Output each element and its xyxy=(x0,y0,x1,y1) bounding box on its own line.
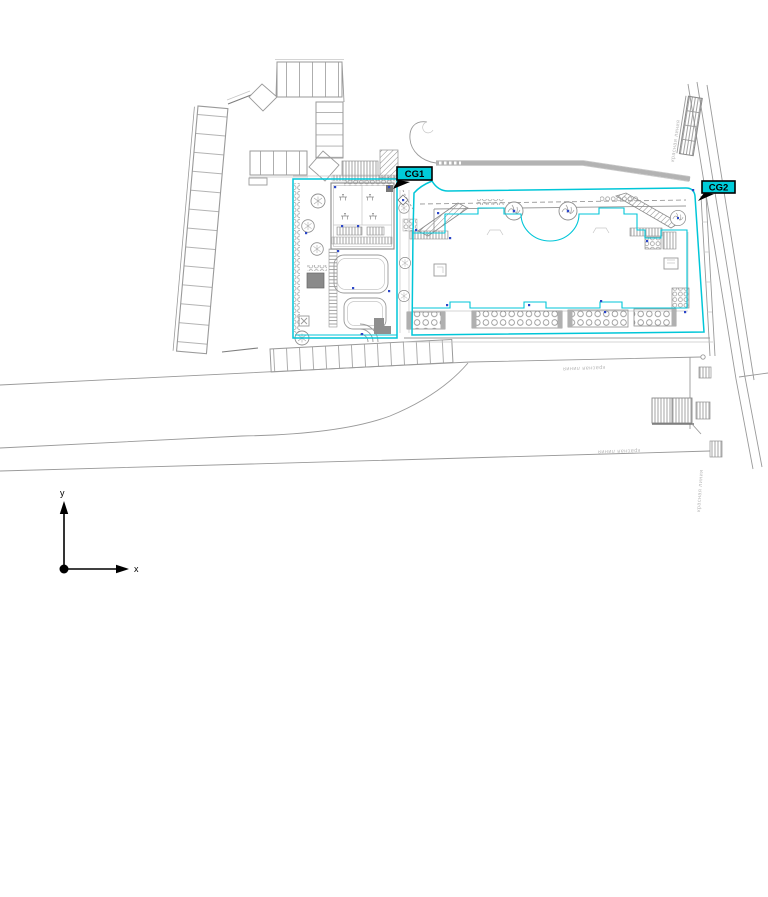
red-line-label-northeast: красная линия xyxy=(670,119,682,162)
red-line-label-mid: красная линия xyxy=(563,364,606,371)
parking-row-inner xyxy=(250,151,307,175)
stair-landing-west xyxy=(410,231,448,239)
scallop-row-2 xyxy=(600,196,638,202)
walkway-hatch xyxy=(332,237,392,244)
bench-1 xyxy=(337,227,362,235)
axis-x-arrowhead xyxy=(116,565,129,573)
planter-rows xyxy=(407,237,689,329)
east-stepped-wall xyxy=(696,196,722,457)
survey-node xyxy=(701,355,705,359)
site-plan-drawing: CG1 CG2 красная линия красная линия крас… xyxy=(0,0,768,897)
ramp-diamond-1 xyxy=(249,84,277,111)
bollard-grid-west xyxy=(403,219,417,231)
axis-origin-dot xyxy=(60,565,69,574)
parking-row-north xyxy=(277,62,342,97)
parking-row-south xyxy=(270,339,453,371)
tag-cg1: CG1 xyxy=(393,167,432,189)
tag-cg1-label: CG1 xyxy=(405,169,425,180)
axis-y-label: y xyxy=(60,488,65,498)
bollard-row-mid xyxy=(307,265,327,271)
left-courtyard-complex xyxy=(293,175,411,345)
site-plan-canvas: CG1 CG2 красная линия красная линия крас… xyxy=(0,0,768,897)
setback-dashed-line xyxy=(420,200,686,204)
south-parking-structure xyxy=(652,398,701,434)
parking-column-mid xyxy=(316,102,343,158)
tag-cg1-leader xyxy=(393,180,410,189)
equipment-pad xyxy=(307,273,324,288)
tag-cg2-label: CG2 xyxy=(709,183,729,194)
entry-steps xyxy=(342,161,378,176)
red-line-label-southeast: красная линия xyxy=(696,469,705,512)
ramp-east xyxy=(663,232,676,249)
scallop-row-1 xyxy=(477,199,504,205)
roads xyxy=(0,82,768,471)
entry-ramp xyxy=(380,150,398,178)
dark-l-block xyxy=(374,318,391,334)
axis-indicator: y x xyxy=(60,488,140,574)
building-outline-cyan xyxy=(412,208,687,308)
hedge-dot-chain xyxy=(294,183,300,333)
playground-track-1 xyxy=(334,255,388,293)
axis-y-arrowhead xyxy=(60,501,68,514)
bench-2 xyxy=(367,227,384,235)
axis-x-label: x xyxy=(134,564,139,574)
tag-cg2: CG2 xyxy=(698,181,735,201)
red-line-label-south: красная линия xyxy=(598,447,641,454)
interior-shaft-1 xyxy=(434,264,446,276)
stair-landing-east xyxy=(630,228,662,236)
north-curb-band xyxy=(410,122,690,182)
curved-road-edge xyxy=(0,363,468,448)
parking-column-west xyxy=(173,106,228,354)
utility-pad xyxy=(249,178,267,185)
cg-tags: CG1 CG2 xyxy=(393,167,735,201)
